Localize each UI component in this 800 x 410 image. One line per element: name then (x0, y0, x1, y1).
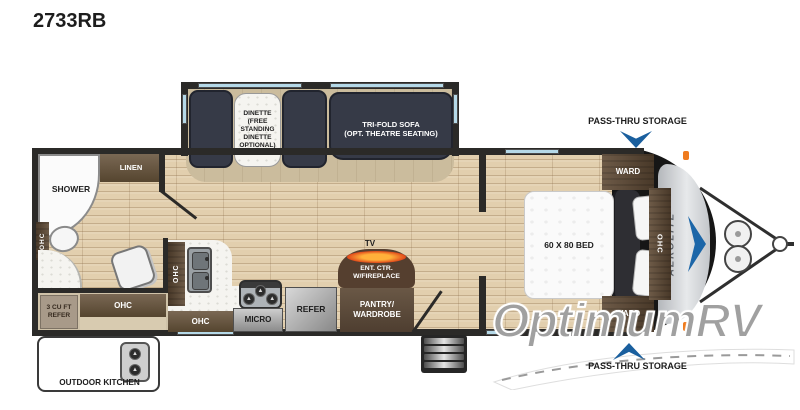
bedroom-wall-stub-top (479, 154, 486, 212)
dinette-chair-right (282, 90, 327, 168)
watermark-text: OptimumRV (492, 294, 760, 349)
outdoor-kitchen-label: OUTDOOR KITCHEN (43, 378, 156, 388)
bed: 60 X 80 BED (524, 191, 614, 299)
dinette-chair-left (189, 90, 233, 168)
linen-cabinet: LINEN (100, 154, 162, 182)
bathroom-wall-stub (159, 154, 165, 192)
outdoor-cooktop-icon: ▲▲ (120, 342, 150, 382)
refrigerator: REFER (285, 287, 337, 332)
tv-label: TV (358, 239, 382, 249)
kitchen-ohc-upper-cabinet: OHC (168, 242, 185, 306)
entertainment-center-fireplace: ENT. CTR. W/FIREPLACE (338, 249, 415, 288)
ent-ctr-label: ENT. CTR. W/FIREPLACE (338, 265, 415, 282)
slideout-window-right (330, 83, 444, 88)
passthru-storage-label-top: PASS-THRU STORAGE (580, 116, 695, 127)
kitchen-ohc-lower-cabinet: OHC (168, 311, 233, 332)
rear-cabinet-lower-band (80, 317, 166, 330)
marker-light-top-icon (683, 151, 689, 160)
slideout-window-left (198, 83, 302, 88)
bedroom-window-top (505, 149, 559, 154)
wardrobe-top: WARD (602, 154, 654, 190)
rear-ohc-cabinet: OHC (80, 294, 166, 317)
slideout-side-window-right (453, 94, 458, 124)
entry-steps (421, 335, 467, 373)
outdoor-kitchen-box: ▲▲ OUTDOOR KITCHEN (37, 336, 160, 392)
pantry-wardrobe: PANTRY/ WARDROBE (340, 288, 414, 332)
passthru-storage-label-bottom: PASS-THRU STORAGE (580, 361, 695, 372)
passthru-arrow-down-icon (620, 131, 652, 148)
shower-label: SHOWER (44, 184, 98, 194)
bedroom-ohc-cabinet: OHC (649, 188, 671, 300)
kitchen-sink-icon (187, 247, 212, 293)
bedroom-wall-stub-bottom (479, 276, 486, 330)
microwave: MICRO (233, 308, 283, 332)
brand-chevron-icon (688, 216, 706, 272)
page-title: 2733RB (33, 10, 106, 33)
fireplace-flame-icon (347, 251, 406, 263)
range-cooktop-icon: ▲▲▲ (239, 280, 282, 309)
outdoor-mini-fridge: 3 CU FT REFER (40, 295, 78, 329)
floorplan-canvas: 2733RB AEROLITE DINETTE (FREE STANDING D… (0, 0, 800, 410)
hitch-aframe-icon (698, 178, 796, 313)
slideout-side-window-left (182, 94, 187, 124)
dinette-table: DINETTE (FREE STANDING DINETTE OPTIONAL) (234, 93, 281, 167)
